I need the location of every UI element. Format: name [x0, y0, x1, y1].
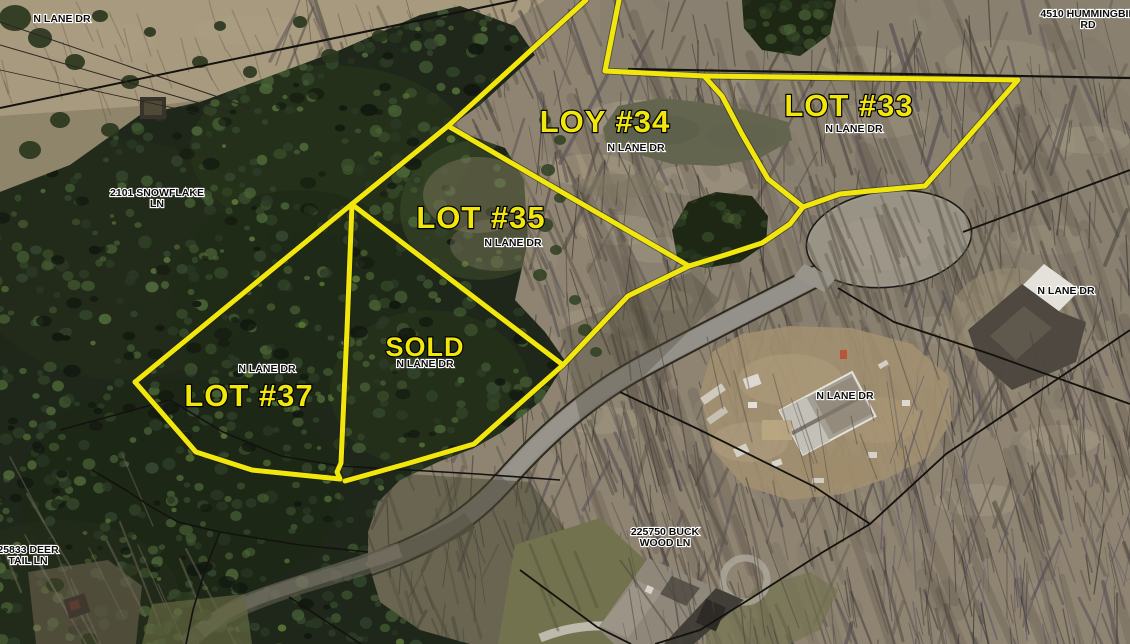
svg-text:N LANE DR: N LANE DR [825, 123, 883, 135]
svg-text:N LANE DR: N LANE DR [607, 142, 665, 154]
svg-text:N LANE DR: N LANE DR [816, 390, 874, 402]
svg-text:RD: RD [1080, 19, 1096, 31]
svg-text:N LANE DR: N LANE DR [33, 13, 91, 25]
svg-text:LOT #37: LOT #37 [184, 378, 313, 413]
svg-text:LOT #35: LOT #35 [416, 200, 545, 235]
svg-text:N LANE DR: N LANE DR [396, 358, 454, 370]
svg-text:WOOD LN: WOOD LN [640, 537, 691, 549]
svg-text:N LANE DR: N LANE DR [484, 237, 542, 249]
svg-text:LN: LN [150, 198, 164, 210]
svg-text:N LANE DR: N LANE DR [238, 363, 296, 375]
svg-text:LOT #33: LOT #33 [784, 88, 913, 123]
svg-text:TAIL LN: TAIL LN [8, 555, 47, 567]
svg-text:N LANE DR: N LANE DR [1037, 285, 1095, 297]
svg-text:LOY #34: LOY #34 [540, 104, 671, 139]
